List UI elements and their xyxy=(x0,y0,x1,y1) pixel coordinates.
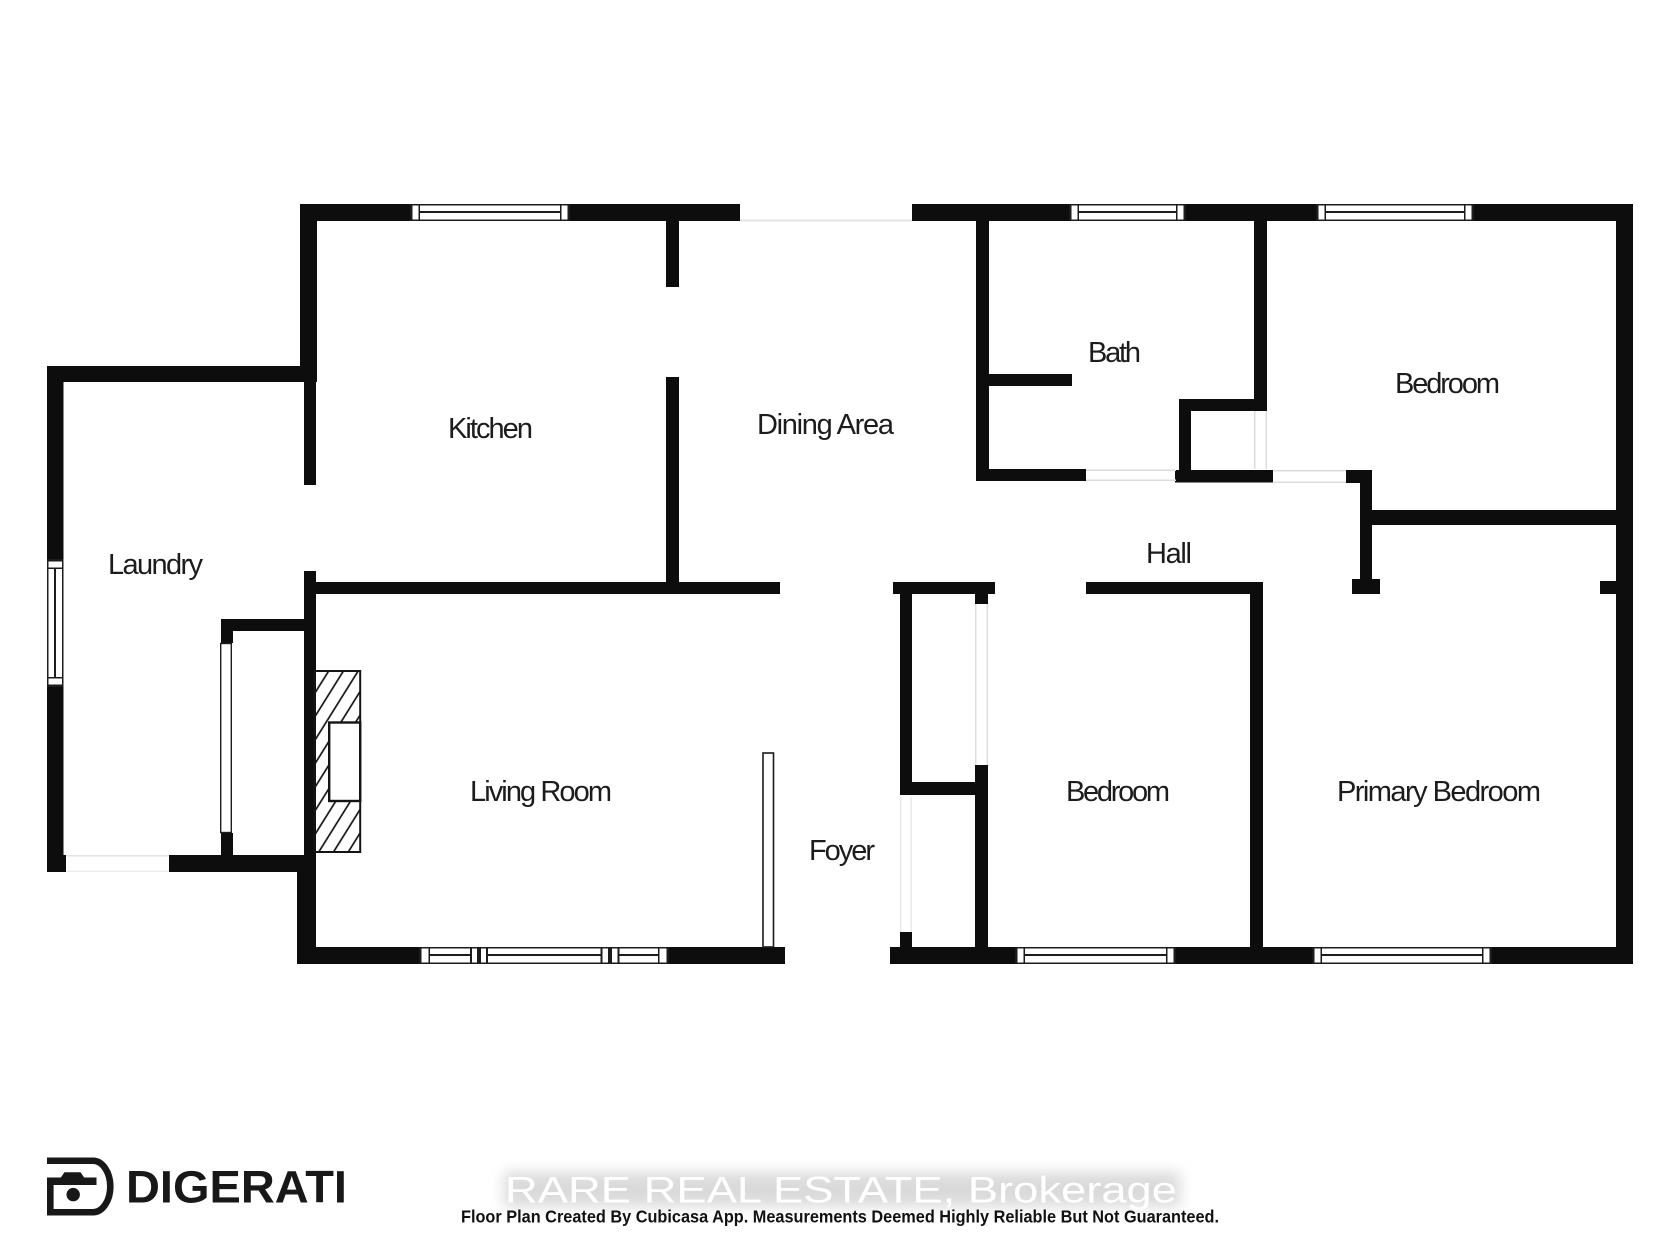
svg-text:Kitchen: Kitchen xyxy=(448,413,533,445)
svg-text:Bedroom: Bedroom xyxy=(1395,368,1500,400)
svg-text:Bedroom: Bedroom xyxy=(1066,776,1170,808)
svg-text:Primary Bedroom: Primary Bedroom xyxy=(1337,776,1541,808)
svg-text:Foyer: Foyer xyxy=(809,835,875,867)
svg-text:Laundry: Laundry xyxy=(108,549,204,581)
svg-text:Hall: Hall xyxy=(1146,538,1192,570)
svg-text:Living Room: Living Room xyxy=(470,776,612,808)
svg-text:DIGERATI: DIGERATI xyxy=(126,1162,347,1213)
svg-text:RARE REAL ESTATE, Brokerage: RARE REAL ESTATE, Brokerage xyxy=(505,1169,1177,1211)
svg-text:Bath: Bath xyxy=(1088,337,1141,369)
svg-text:Dining Area: Dining Area xyxy=(757,409,895,441)
svg-text:Floor Plan Created By Cubicasa: Floor Plan Created By Cubicasa App. Meas… xyxy=(461,1207,1219,1227)
